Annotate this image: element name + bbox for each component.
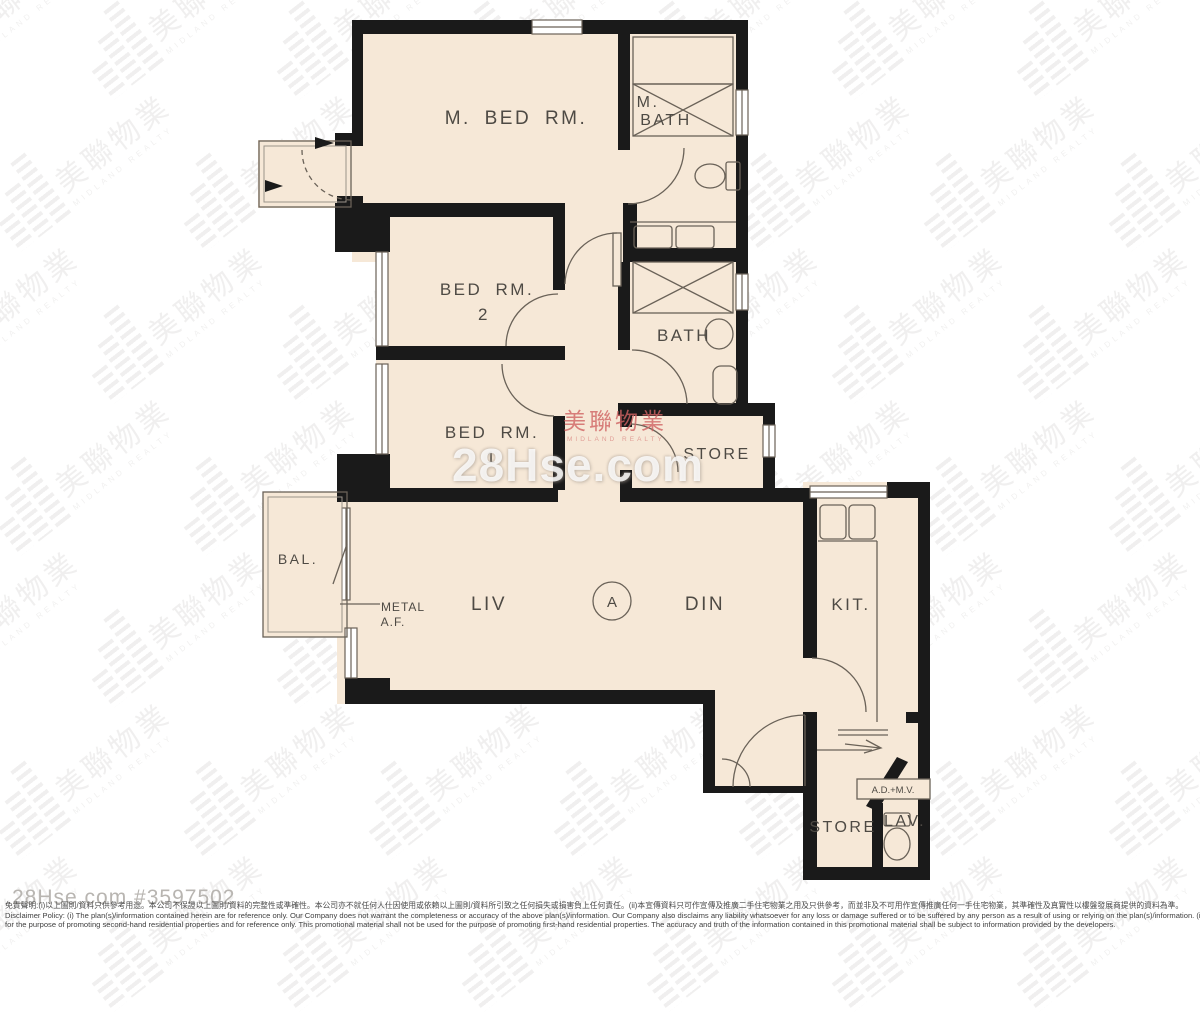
metal-af-label-1: METAL bbox=[381, 600, 425, 614]
room-label-bedroom1: BED RM. bbox=[445, 423, 539, 442]
disclaimer-line-zh: 免責聲明:(i)以上圖則/資料只供參考用途。本公司不保證以上圖則/資料的完整性或… bbox=[5, 901, 1197, 911]
room-label-bedroom2: BED RM. bbox=[440, 280, 534, 299]
disclaimer-line-en-2: for the purpose of promoting second-hand… bbox=[5, 920, 1197, 930]
room-label-balcony: BAL. bbox=[278, 551, 318, 567]
room-floor-fills bbox=[258, 20, 930, 880]
floor-plan-drawing: M. BED RM. M. BATH BED RM. 2 BED RM. 1 B… bbox=[0, 0, 1200, 934]
disclaimer-line-en-1: Disclaimer Policy: (i) The plan(s)/infor… bbox=[5, 911, 1197, 921]
room-label-kitchen: KIT. bbox=[831, 595, 870, 614]
ad-mv-label: A.D.+M.V. bbox=[872, 785, 915, 796]
floor-plan-page: { "watermark": { "brand_cjk": "美聯物業", "b… bbox=[0, 0, 1200, 934]
room-label-master-bath-1: M. bbox=[637, 94, 660, 111]
room-label-store-mid: STORE bbox=[683, 446, 750, 463]
room-label-master-bedroom: M. BED RM. bbox=[445, 108, 588, 129]
room-label-master-bath-2: BATH bbox=[640, 112, 691, 129]
room-label-bath: BATH bbox=[657, 326, 711, 345]
unit-letter: A bbox=[607, 594, 617, 611]
metal-af-label-2: A.F. bbox=[381, 615, 406, 629]
room-label-bedroom1-number: 1 bbox=[486, 448, 498, 467]
room-label-dining: DIN bbox=[685, 594, 725, 615]
room-label-bedroom2-number: 2 bbox=[478, 305, 490, 324]
disclaimer-footer: 免責聲明:(i)以上圖則/資料只供參考用途。本公司不保證以上圖則/資料的完整性或… bbox=[5, 901, 1197, 930]
room-label-living: LIV bbox=[471, 594, 507, 615]
room-label-lavatory: LAV. bbox=[884, 813, 926, 830]
door-leaf bbox=[613, 233, 621, 286]
room-label-store-bottom: STORE bbox=[809, 819, 876, 836]
